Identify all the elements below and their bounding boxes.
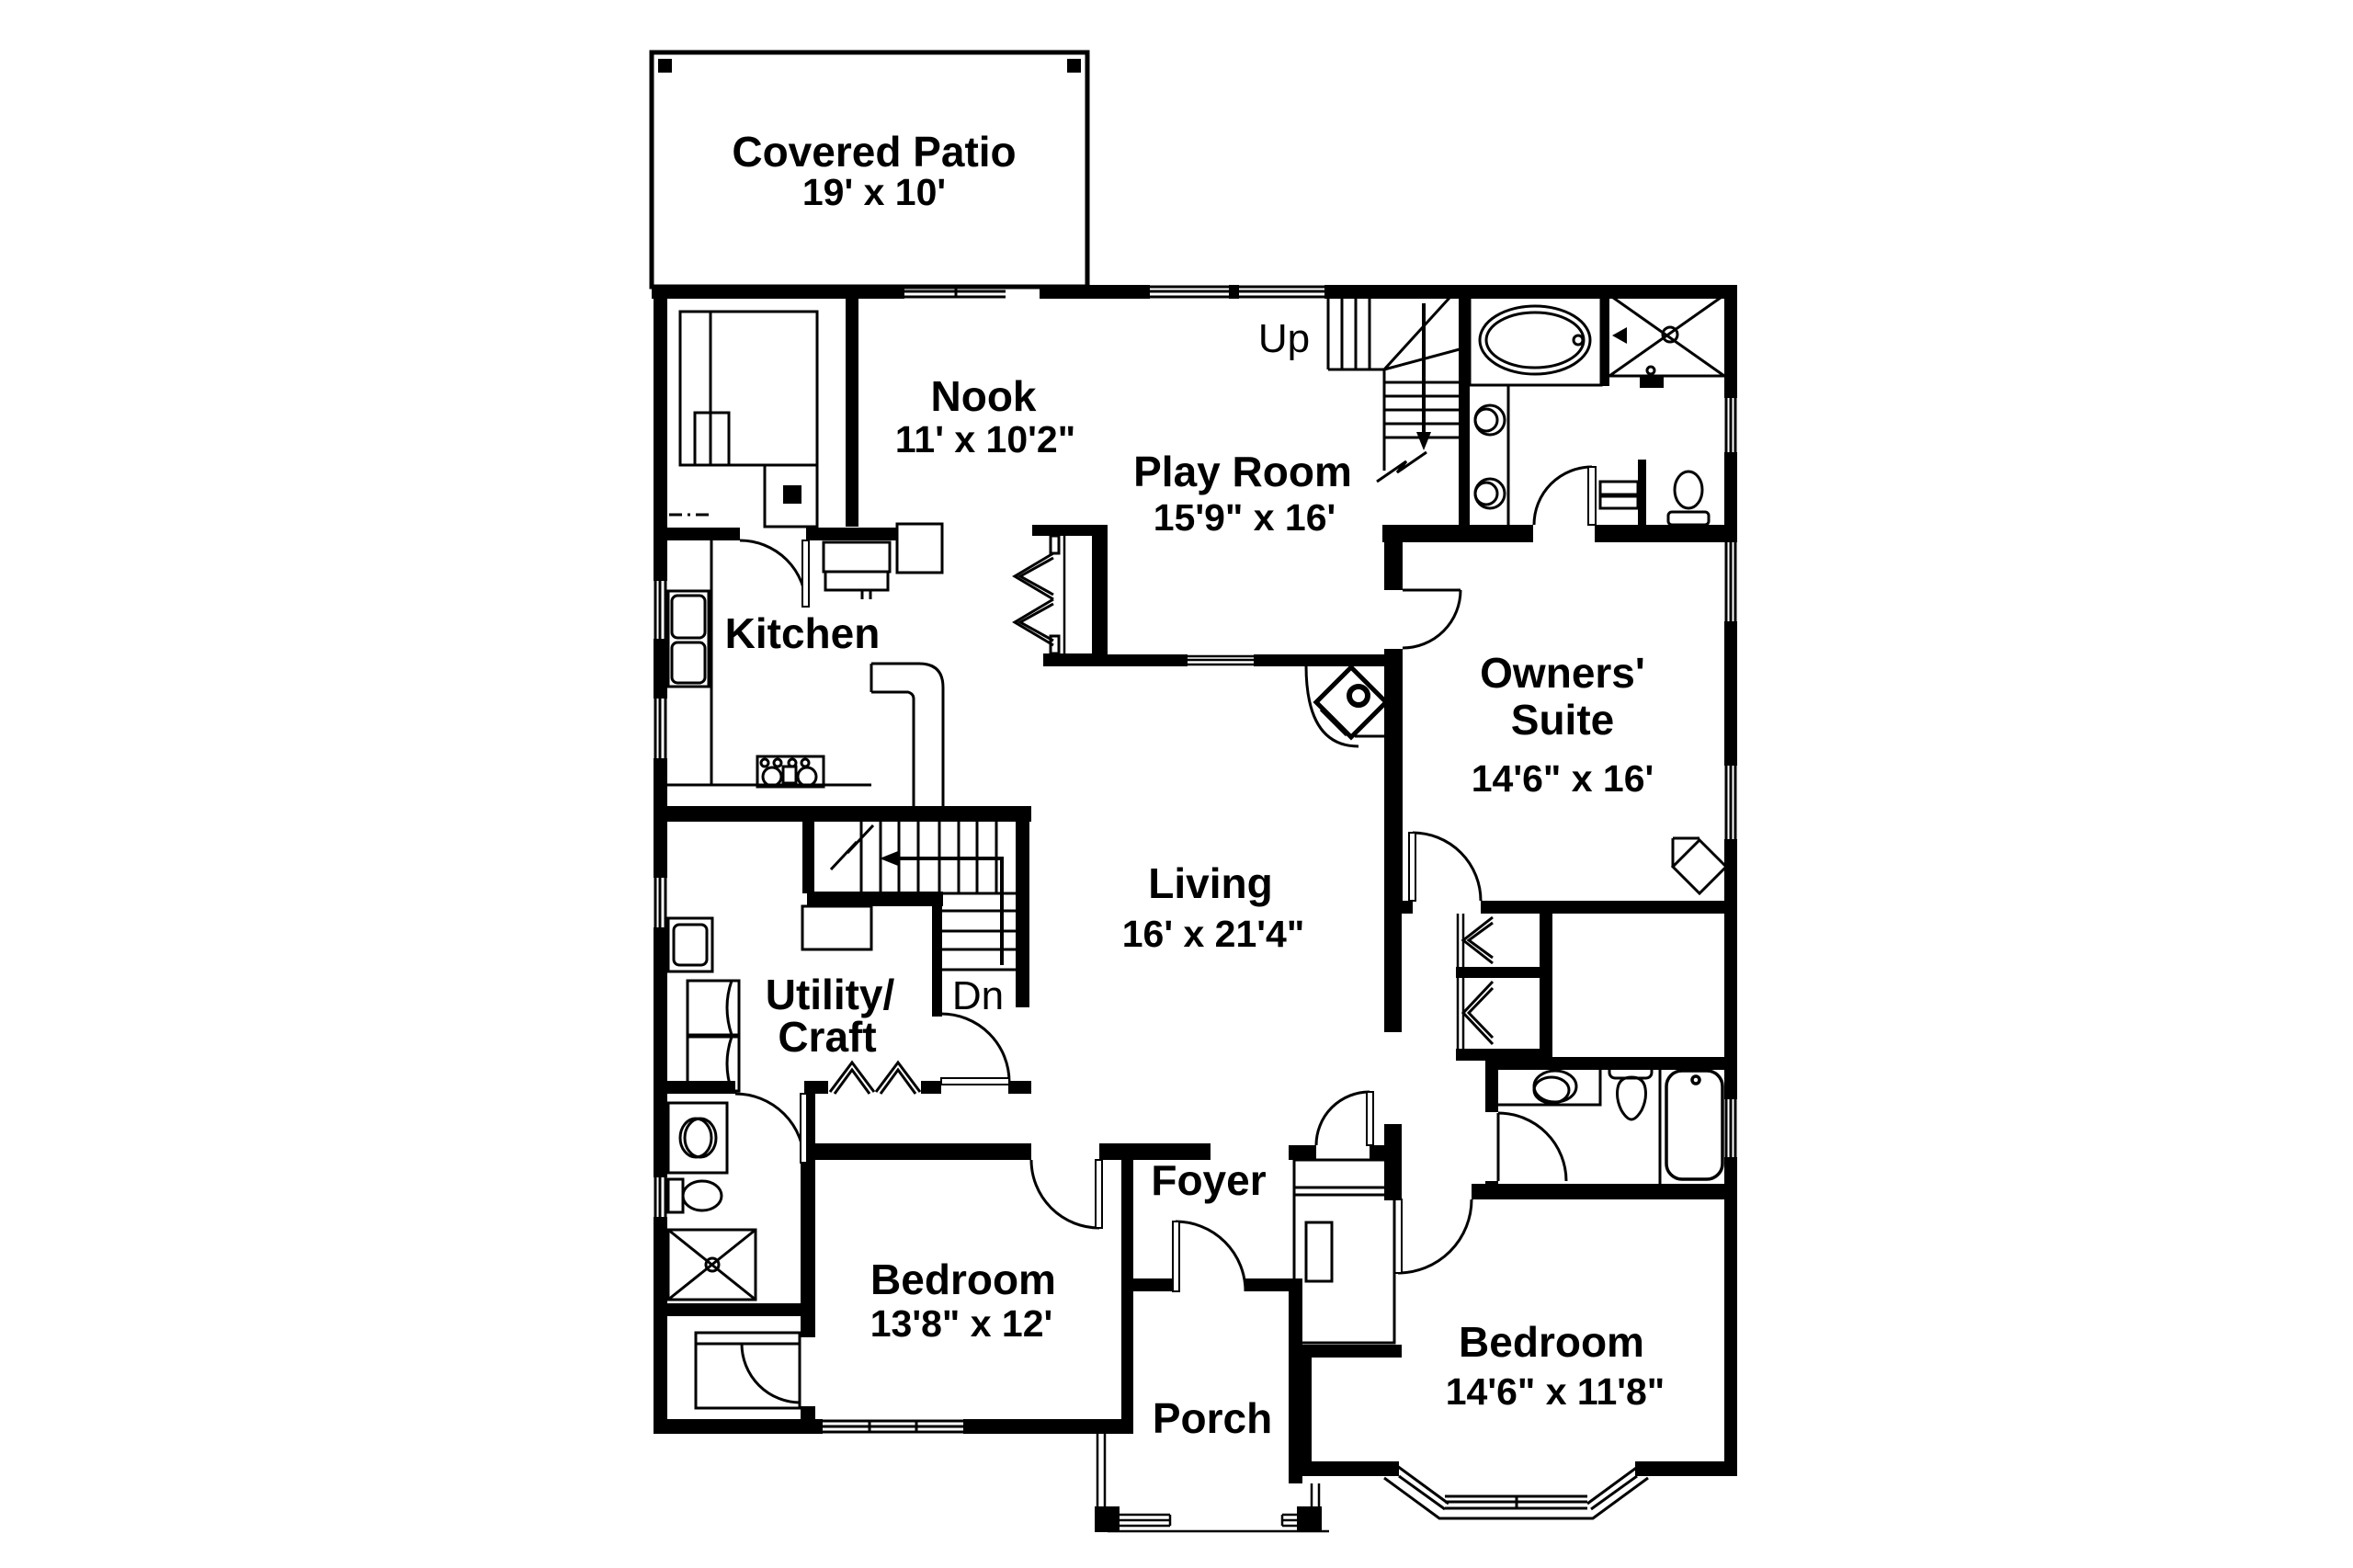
svg-text:14'6" x 16': 14'6" x 16' — [1472, 757, 1654, 800]
svg-text:Covered Patio: Covered Patio — [732, 128, 1016, 176]
svg-text:Dn: Dn — [952, 973, 1004, 1018]
svg-text:Owners': Owners' — [1480, 649, 1645, 697]
svg-text:Up: Up — [1258, 316, 1310, 361]
svg-text:16' x 21'4": 16' x 21'4" — [1122, 913, 1305, 955]
svg-text:Bedroom: Bedroom — [870, 1256, 1056, 1303]
svg-text:11' x 10'2": 11' x 10'2" — [895, 418, 1075, 460]
svg-text:Nook: Nook — [931, 372, 1037, 420]
svg-text:Bedroom: Bedroom — [1459, 1318, 1644, 1366]
svg-text:13'8" x 12': 13'8" x 12' — [870, 1302, 1053, 1345]
svg-text:Play Room: Play Room — [1133, 448, 1352, 495]
svg-text:Living: Living — [1148, 859, 1272, 907]
svg-text:19' x 10': 19' x 10' — [802, 171, 946, 213]
svg-text:Kitchen: Kitchen — [725, 609, 881, 657]
svg-text:Suite: Suite — [1511, 696, 1614, 744]
svg-text:15'9" x 16': 15'9" x 16' — [1154, 496, 1336, 539]
svg-text:14'6" x 11'8": 14'6" x 11'8" — [1446, 1370, 1665, 1413]
svg-text:Craft: Craft — [778, 1013, 876, 1061]
svg-text:Utility/: Utility/ — [766, 971, 895, 1018]
svg-text:Porch: Porch — [1153, 1394, 1272, 1442]
svg-text:Foyer: Foyer — [1151, 1156, 1266, 1204]
